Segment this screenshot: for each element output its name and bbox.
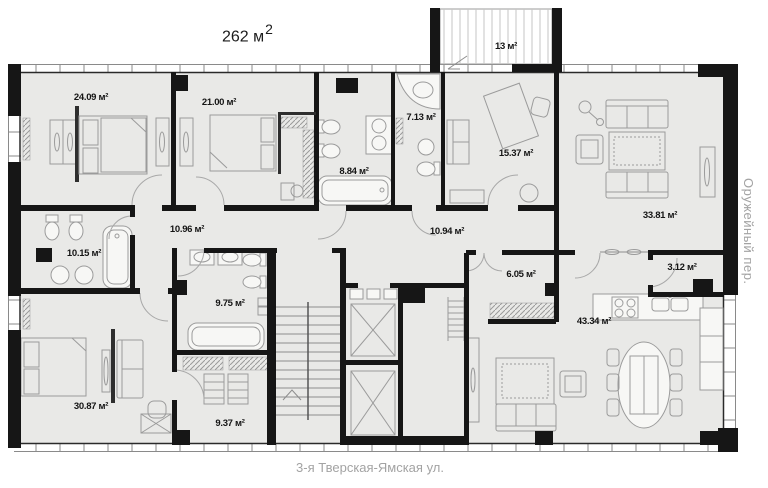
closet-rack-top [281,117,307,128]
room-label-study: 15.37 м² [499,148,533,159]
floor-plan-page: 262 м2 [0,0,768,488]
room-label-bath2: 7.13 м² [406,112,435,123]
hall-furniture [490,303,554,318]
coat-rack [490,303,554,318]
hanging-rack-2 [229,357,269,370]
room-label-kitchen-living: 43.34 м² [577,316,611,327]
room-label-bedroom2: 21.00 м² [202,97,236,108]
room-label-pantry: 3.12 м² [667,262,696,273]
sink2 [418,139,434,155]
bidet4 [243,276,261,288]
bidet3 [45,222,59,240]
room-label-bath4: 9.75 м² [215,298,244,309]
closet-rack-side [303,130,314,198]
room-label-bath1: 8.84 м² [339,166,368,177]
floor-plan-drawing: 13 м² 24.09 м² 21.00 м² 8.84 м² 7.13 м² … [0,0,768,488]
toilet3 [69,222,83,240]
room-label-living: 33.81 м² [643,210,677,221]
street-label-bottom: 3-я Тверская-Ямская ул. [0,460,740,475]
toilet2 [417,162,435,176]
sink3a [51,266,69,284]
room-label-corridor1: 10.96 м² [170,224,204,235]
toilet4 [243,254,261,266]
toilet1 [322,120,340,134]
street-label-right: Оружейный пер. [741,178,756,378]
tall-cabinet [700,308,723,390]
tv-partition [111,329,115,403]
room-label-bedroom1: 24.09 м² [74,92,108,103]
room-label-wardrobe: 9.37 м² [215,418,244,429]
room-label-bedroom3: 30.87 м² [74,401,108,412]
room-label-bath3: 10.15 м² [67,248,101,259]
bidet1 [322,144,340,158]
hanging-rack-1 [183,357,223,370]
room-label-corridor2: 10.94 м² [430,226,464,237]
sink3b [75,266,93,284]
balcony [430,8,562,72]
room-label-balcony: 13 м² [495,41,517,52]
room-label-hall: 6.05 м² [506,269,535,280]
